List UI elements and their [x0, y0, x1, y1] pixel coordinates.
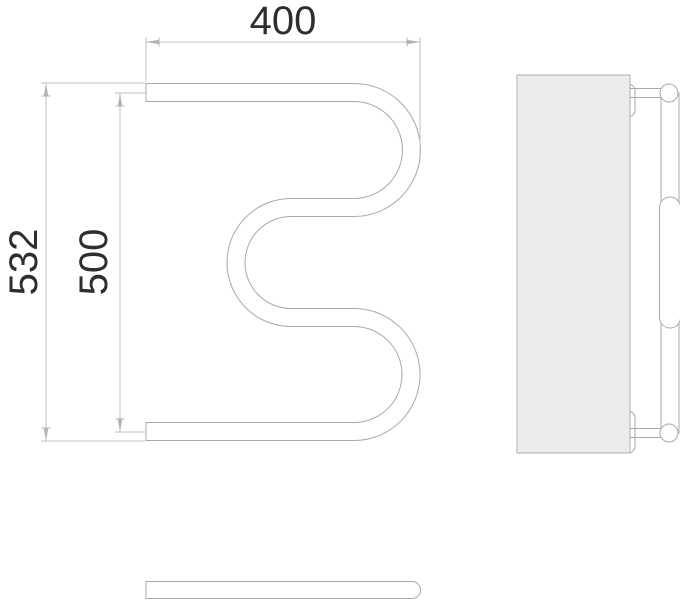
top-view — [146, 582, 421, 599]
dimension-overall-height-label: 532 — [2, 229, 46, 296]
dimension-width-label: 400 — [250, 0, 317, 43]
side-middle-bend — [660, 197, 680, 328]
front-view — [146, 83, 411, 441]
dimension-axis-height-label: 500 — [72, 229, 116, 296]
pipe-end-circle-top — [660, 84, 678, 102]
pipe-core — [146, 93, 411, 432]
side-panel — [517, 75, 630, 453]
dimension-width: 400 — [146, 0, 420, 155]
technical-drawing: 400 532 500 — [0, 0, 680, 600]
dim-arrow-up — [42, 83, 51, 96]
pipe-end-circle-bottom — [660, 424, 678, 442]
dim-arrow-down — [42, 428, 51, 441]
dim-arrow-right — [407, 38, 420, 47]
dimension-axis-height: 500 — [72, 93, 145, 432]
side-view — [517, 75, 680, 453]
dim-arrow-up — [116, 93, 125, 106]
dim-arrow-left — [146, 38, 159, 47]
drawing-canvas: 400 532 500 — [0, 0, 680, 600]
dim-arrow-down — [116, 419, 125, 432]
top-view-pipe — [146, 582, 421, 599]
pipe-outline — [146, 93, 411, 432]
